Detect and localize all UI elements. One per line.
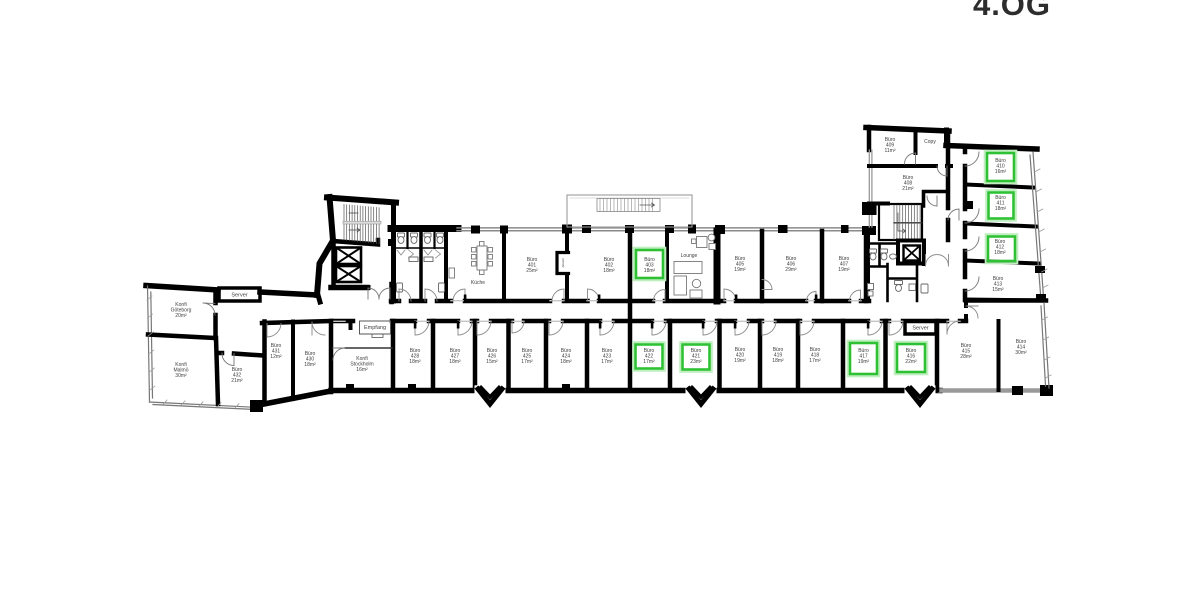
svg-text:Büro40719m²: Büro40719m² xyxy=(838,256,850,273)
svg-text:Büro41622m²: Büro41622m² xyxy=(905,348,917,365)
svg-text:Lounge: Lounge xyxy=(681,253,698,259)
svg-text:KonfiMalmö30m²: KonfiMalmö30m² xyxy=(173,362,188,379)
svg-text:Büro42418m²: Büro42418m² xyxy=(560,348,572,365)
svg-text:KonfiStockholm16m²: KonfiStockholm16m² xyxy=(350,356,373,373)
svg-text:Büro42317m²: Büro42317m² xyxy=(601,348,613,365)
svg-text:Büro41430m²: Büro41430m² xyxy=(1015,339,1027,356)
svg-text:Büro40519m²: Büro40519m² xyxy=(734,256,746,273)
svg-text:Büro42517m²: Büro42517m² xyxy=(521,348,533,365)
svg-text:Büro40911m²: Büro40911m² xyxy=(884,137,895,154)
svg-text:Büro40125m²: Büro40125m² xyxy=(526,257,538,274)
svg-text:Büro40318m²: Büro40318m² xyxy=(644,257,656,274)
svg-text:Büro41218m²: Büro41218m² xyxy=(994,239,1006,256)
svg-text:Büro43112m²: Büro43112m² xyxy=(270,343,282,360)
svg-text:Büro42718m²: Büro42718m² xyxy=(449,348,461,365)
svg-text:Küche: Küche xyxy=(471,280,485,286)
svg-text:Büro41315m²: Büro41315m² xyxy=(992,276,1004,293)
svg-text:Büro42615m²: Büro42615m² xyxy=(486,348,498,365)
svg-text:Büro41817m²: Büro41817m² xyxy=(809,347,821,364)
svg-text:Büro40821m²: Büro40821m² xyxy=(902,175,914,192)
svg-text:Büro41528m²: Büro41528m² xyxy=(960,343,972,360)
svg-text:Büro41719m²: Büro41719m² xyxy=(858,348,870,365)
svg-text:Büro40629m²: Büro40629m² xyxy=(785,256,797,273)
svg-text:Copy: Copy xyxy=(924,139,936,145)
svg-text:Büro40218m²: Büro40218m² xyxy=(603,257,615,274)
svg-text:Büro42217m²: Büro42217m² xyxy=(643,348,655,365)
svg-text:Büro41118m²: Büro41118m² xyxy=(995,195,1007,212)
svg-text:Büro43018m²: Büro43018m² xyxy=(304,351,316,368)
svg-text:Büro42818m²: Büro42818m² xyxy=(409,348,421,365)
svg-text:Büro41016m²: Büro41016m² xyxy=(995,158,1007,175)
svg-text:Büro43221m²: Büro43221m² xyxy=(231,367,243,384)
svg-text:Büro42019m²: Büro42019m² xyxy=(734,347,746,364)
svg-text:Empfang: Empfang xyxy=(364,325,386,331)
svg-text:KonfiGöteborg20m²: KonfiGöteborg20m² xyxy=(171,302,192,319)
svg-text:Abstell: Abstell xyxy=(561,258,565,267)
svg-text:Büro41918m²: Büro41918m² xyxy=(772,347,784,364)
svg-text:Server: Server xyxy=(231,293,247,299)
svg-text:Server: Server xyxy=(912,326,928,332)
svg-text:Büro42123m²: Büro42123m² xyxy=(690,348,702,365)
